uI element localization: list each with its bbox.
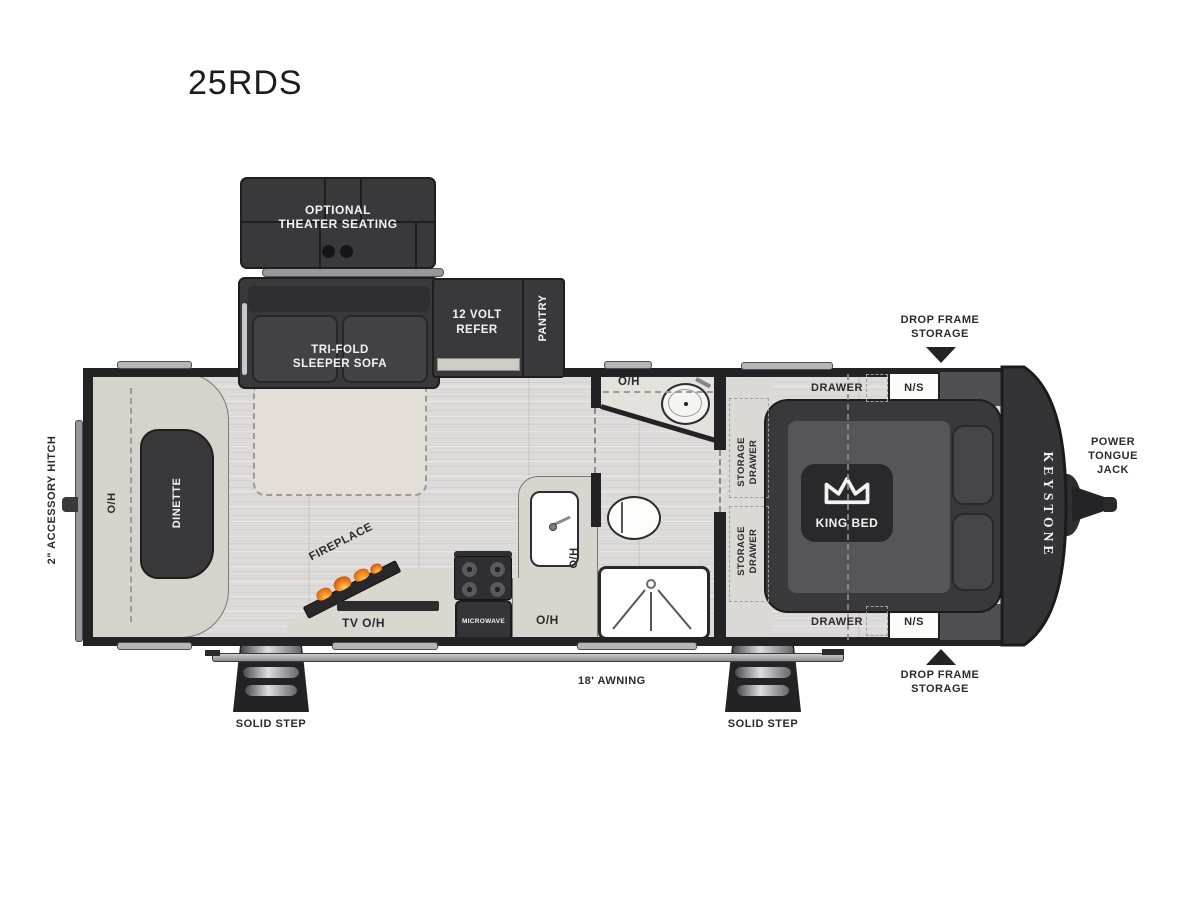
bath-wall-left-upper (591, 372, 601, 408)
cupholder-icon (322, 245, 335, 258)
page-title: 25RDS (188, 64, 303, 103)
solid-step-label: SOLID STEP (725, 718, 801, 730)
cooktop (454, 556, 512, 600)
kitchen-overhead-label: O/H (568, 547, 580, 568)
kitchen-lower-overhead-label: O/H (536, 613, 559, 627)
sofa-armrest (242, 303, 247, 375)
dinette-label: DINETTE (171, 478, 183, 529)
awning-label: 18' AWNING (578, 675, 646, 687)
floorplan-page: { "title": "25RDS", "colors": { "furnitu… (0, 0, 1200, 900)
sleeper-sofa-label: TRI-FOLD SLEEPER SOFA (254, 343, 426, 372)
storage-drawer-label: STORAGE DRAWER (736, 526, 760, 576)
king-bed: KING BED (764, 399, 1002, 613)
slideout-floor-outline (253, 389, 427, 496)
burner-icon (462, 582, 477, 597)
drop-frame-storage-label-bottom: DROP FRAME STORAGE (890, 668, 990, 697)
awning-end-cap (822, 649, 844, 655)
drawer-label-bottom: DRAWER (811, 616, 863, 628)
burner-icon (490, 562, 505, 577)
tv (337, 601, 439, 611)
nightstand-label-bottom: N/S (888, 616, 940, 628)
storage-drawer-label: STORAGE DRAWER (736, 437, 760, 487)
shower (598, 566, 710, 640)
window-icon (604, 361, 652, 369)
burner-icon (462, 562, 477, 577)
drawer-label-top: DRAWER (811, 382, 863, 394)
cupholder-icon (340, 245, 353, 258)
bath-wall-right-lower (714, 512, 726, 642)
solid-step (725, 640, 801, 712)
window-icon (117, 642, 192, 650)
dinette-overhead-label: O/H (106, 492, 118, 513)
solid-step (233, 640, 309, 712)
refer-label: 12 VOLT REFER (434, 308, 520, 338)
rear-bumper (75, 420, 83, 642)
entry-door-icon (332, 642, 438, 650)
refer-ledge (437, 358, 520, 371)
kitchen-lower-cabinet (512, 578, 598, 638)
bath-wall-right-upper (714, 372, 726, 450)
arrow-up-icon (926, 649, 956, 665)
drop-frame-storage-label-top: DROP FRAME STORAGE (890, 313, 990, 342)
bath-overhead-divider (603, 391, 713, 393)
sleeper-sofa-slide (238, 277, 440, 389)
wall-rear (83, 368, 93, 646)
awning-rail (212, 653, 844, 662)
bath-door-right (719, 450, 721, 512)
window-icon (741, 362, 833, 370)
burner-icon (490, 582, 505, 597)
accessory-hitch-receiver (62, 497, 78, 512)
pillow (952, 513, 994, 591)
dinette-overhead-divider (130, 388, 132, 622)
arrow-down-icon (926, 347, 956, 363)
toilet (607, 496, 661, 540)
awning-end-cap (205, 650, 220, 656)
window-icon (577, 642, 697, 650)
drawer-outline-bottom (866, 606, 888, 636)
kitchen-faucet-base (549, 523, 557, 531)
drop-frame-extent-line (847, 374, 849, 640)
tv-overhead-label: TV O/H (342, 616, 385, 630)
keystone-brand-label: KEYSTONE (1040, 452, 1056, 559)
slideout-rail (262, 268, 444, 277)
showerhead-icon (647, 580, 655, 588)
drawer-outline-top (866, 374, 888, 402)
wall-bottom (83, 637, 1010, 646)
pantry-label: PANTRY (537, 295, 549, 342)
nightstand-label-top: N/S (888, 382, 940, 394)
power-tongue-jack-label: POWER TONGUE JACK (1078, 436, 1148, 477)
bath-overhead-label: O/H (618, 376, 640, 388)
theater-seating-label: OPTIONAL THEATER SEATING (252, 203, 424, 232)
pillow (952, 425, 994, 505)
solid-step-label: SOLID STEP (233, 718, 309, 730)
bath-door-left (594, 408, 596, 473)
accessory-hitch-label: 2" ACCESSORY HITCH (46, 436, 58, 565)
bath-wall-left-lower (591, 473, 601, 527)
bath-sink (661, 383, 710, 425)
microwave-label: MICROWAVE (455, 618, 512, 625)
window-icon (117, 361, 192, 369)
